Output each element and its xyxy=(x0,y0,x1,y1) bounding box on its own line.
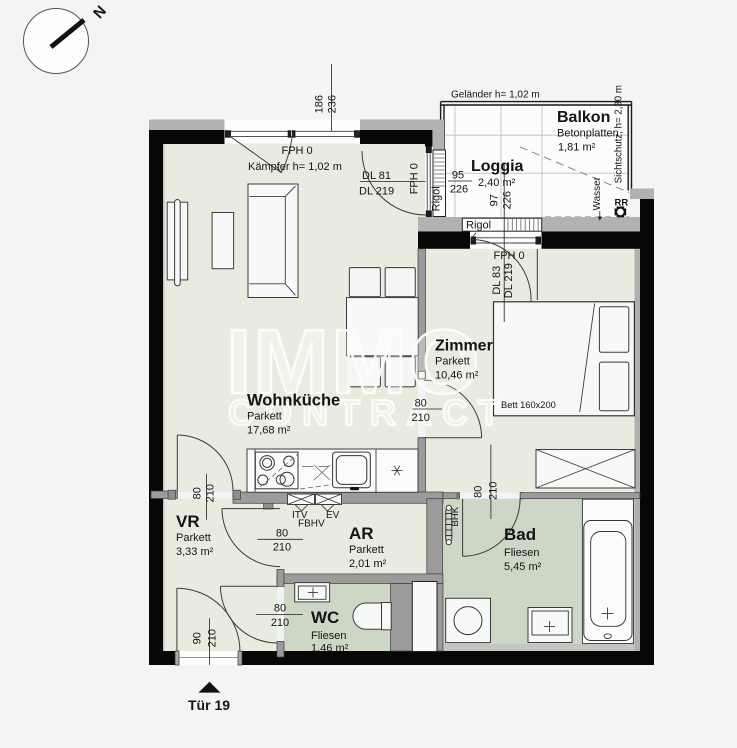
svg-text:AR: AR xyxy=(349,524,374,543)
svg-text:1,46 m²: 1,46 m² xyxy=(311,643,349,655)
svg-text:210: 210 xyxy=(204,484,216,502)
svg-text:RR: RR xyxy=(615,198,629,209)
svg-text:WC: WC xyxy=(311,608,339,627)
svg-text:DL 219: DL 219 xyxy=(359,186,394,198)
svg-text:3,33 m²: 3,33 m² xyxy=(176,546,214,558)
svg-text:Loggia: Loggia xyxy=(471,158,524,175)
svg-text:Betonplatten: Betonplatten xyxy=(557,128,619,140)
svg-text:FBHV: FBHV xyxy=(298,519,325,530)
svg-text:VR: VR xyxy=(176,512,200,531)
svg-text:Wohnküche: Wohnküche xyxy=(247,392,340,410)
svg-text:17,68 m²: 17,68 m² xyxy=(247,425,291,437)
svg-text:90: 90 xyxy=(192,632,204,644)
svg-text:226: 226 xyxy=(502,191,514,209)
svg-text:Bad: Bad xyxy=(504,525,536,544)
svg-text:BHK: BHK xyxy=(450,506,461,526)
svg-text:80: 80 xyxy=(415,398,427,410)
svg-text:Parkett: Parkett xyxy=(176,532,211,544)
svg-text:186: 186 xyxy=(313,95,325,113)
svg-text:80: 80 xyxy=(473,486,485,498)
svg-text:210: 210 xyxy=(487,482,499,500)
svg-text:Rigol: Rigol xyxy=(466,220,491,232)
svg-text:80: 80 xyxy=(276,528,288,540)
svg-text:EV: EV xyxy=(326,510,340,521)
svg-text:Rigol: Rigol xyxy=(430,186,442,211)
svg-text:210: 210 xyxy=(271,617,289,629)
svg-text:5,45 m²: 5,45 m² xyxy=(504,561,542,573)
svg-text:210: 210 xyxy=(273,542,291,554)
svg-text:Wasser: Wasser xyxy=(592,176,603,210)
svg-text:FPH 0: FPH 0 xyxy=(409,163,421,194)
svg-text:210: 210 xyxy=(207,629,219,647)
svg-text:236: 236 xyxy=(326,95,338,113)
svg-text:97: 97 xyxy=(489,194,501,206)
svg-text:Fliesen: Fliesen xyxy=(311,630,346,642)
svg-text:1,81 m²: 1,81 m² xyxy=(558,142,596,154)
svg-text:Zimmer: Zimmer xyxy=(435,338,493,355)
svg-text:Bett 160x200: Bett 160x200 xyxy=(501,400,556,410)
svg-text:Parkett: Parkett xyxy=(247,411,282,423)
svg-text:Fliesen: Fliesen xyxy=(504,547,539,559)
svg-text:Balkon: Balkon xyxy=(557,109,610,126)
svg-text:226: 226 xyxy=(450,184,468,196)
svg-text:210: 210 xyxy=(412,412,430,424)
svg-text:DL 219: DL 219 xyxy=(503,263,515,298)
svg-text:FPH 0: FPH 0 xyxy=(282,145,313,157)
svg-text:DL 83: DL 83 xyxy=(491,266,503,295)
svg-text:Parkett: Parkett xyxy=(349,544,384,556)
svg-text:FPH 0: FPH 0 xyxy=(494,250,525,262)
svg-text:95: 95 xyxy=(452,170,464,182)
svg-text:2,40 m²: 2,40 m² xyxy=(478,177,516,189)
svg-text:80: 80 xyxy=(274,603,286,615)
svg-text:2,01 m²: 2,01 m² xyxy=(349,558,387,570)
svg-text:Geländer h= 1,02 m: Geländer h= 1,02 m xyxy=(451,90,540,101)
svg-text:80: 80 xyxy=(192,487,204,499)
svg-text:Tür 19: Tür 19 xyxy=(188,697,230,713)
svg-text:Parkett: Parkett xyxy=(435,356,470,368)
svg-text:10,46 m²: 10,46 m² xyxy=(435,370,479,382)
svg-text:Kämpfer h= 1,02 m: Kämpfer h= 1,02 m xyxy=(248,161,342,173)
svg-text:DL 81: DL 81 xyxy=(362,170,391,182)
